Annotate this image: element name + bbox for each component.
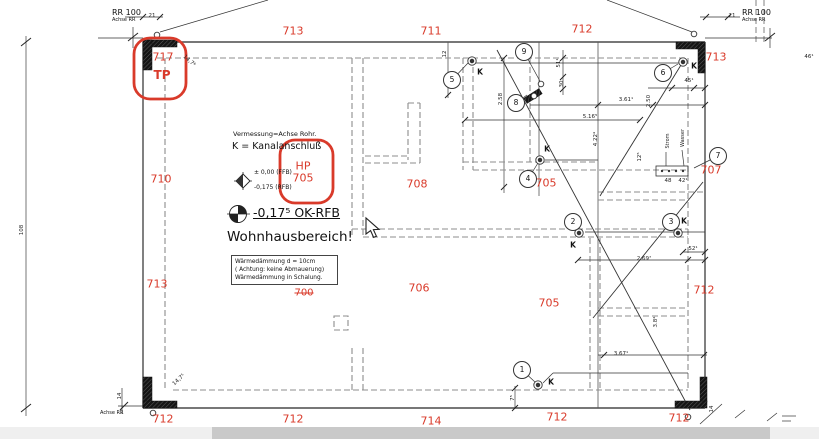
mouse-cursor (0, 0, 819, 439)
floor-plan-drawing: RR 100 Achse RR RR 100 Achse RR Achse RR… (0, 0, 819, 439)
